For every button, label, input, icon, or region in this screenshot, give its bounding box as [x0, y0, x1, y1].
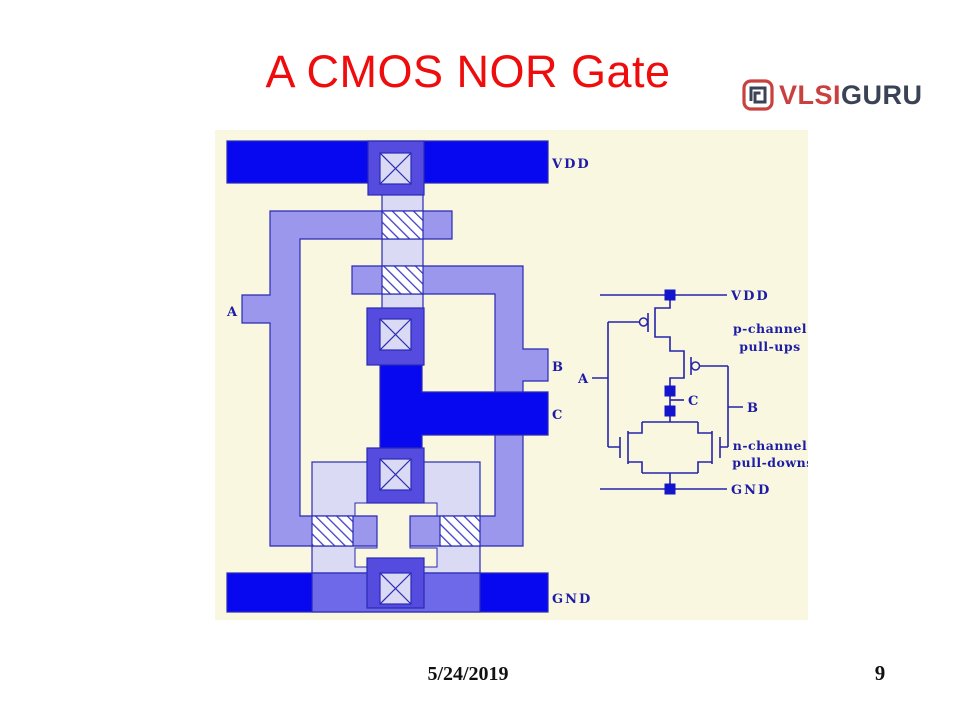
annotation-pull-downs: pull-downs [732, 455, 808, 470]
vlsiguru-logo: VLSIGURU [741, 78, 923, 112]
slide-title: A CMOS NOR Gate [158, 46, 778, 98]
logo-text-guru: GURU [841, 80, 923, 111]
schematic-label-gnd: GND [731, 483, 771, 498]
schematic-diagram: VDD GND A B C p-channel pull-ups n-chann… [577, 289, 808, 498]
logo-text-vlsi: VLSI [779, 80, 841, 111]
input-a-net [592, 322, 640, 447]
schematic-label-b: B [747, 401, 758, 416]
layout-label-c: C [552, 408, 562, 423]
nmos-parallel-path [608, 422, 728, 489]
slide: A CMOS NOR Gate VLSIGURU [0, 0, 960, 720]
page-number: 9 [860, 661, 900, 686]
annotation-pull-ups: pull-ups [739, 339, 800, 354]
diagram-canvas: VDD A B C GND [215, 130, 808, 620]
schematic-label-c: C [688, 394, 698, 409]
layout-label-gnd: GND [552, 592, 592, 607]
annotation-p-channel: p-channel [733, 321, 807, 336]
layout-label-vdd: VDD [551, 157, 591, 172]
vlsiguru-logo-icon [741, 78, 775, 112]
layout-label-b: B [552, 360, 563, 375]
pmos-series-path [655, 295, 684, 422]
nmos-drain-contact-cut [380, 459, 411, 490]
nmos-gate-a [312, 516, 353, 546]
pmos-gate-a [382, 211, 423, 239]
pmos-gate-b [382, 266, 423, 294]
footer-date: 5/24/2019 [388, 663, 548, 686]
output-node-upper [665, 386, 676, 397]
schematic-label-vdd: VDD [730, 289, 770, 304]
nmos-gate-b [440, 516, 480, 546]
gnd-node [665, 484, 676, 495]
pmos1-gate-bubble [640, 318, 648, 326]
gnd-contact-cut [380, 573, 411, 604]
pmos-drain-contact-cut [380, 319, 411, 350]
annotation-n-channel: n-channel [733, 438, 807, 453]
vdd-node [665, 290, 676, 301]
input-b-net [700, 366, 744, 447]
layout-diagram: VDD A B C GND [226, 141, 592, 612]
layout-label-a: A [226, 305, 238, 320]
schematic-label-a: A [577, 372, 589, 387]
output-node-lower [665, 406, 676, 417]
vdd-contact-cut [380, 153, 411, 184]
pmos2-gate-bubble [692, 362, 700, 370]
cmos-nor-figure: VDD A B C GND [215, 130, 808, 620]
